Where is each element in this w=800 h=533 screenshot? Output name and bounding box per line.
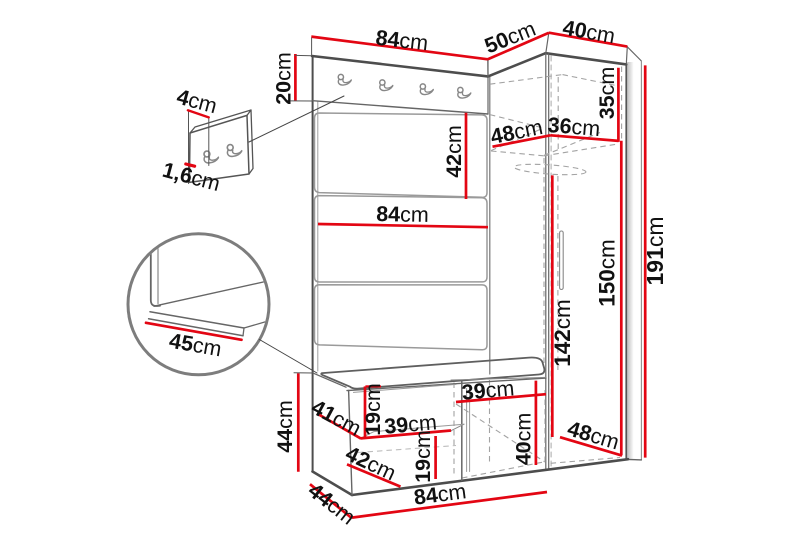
svg-text:19cm: 19cm bbox=[361, 383, 385, 436]
svg-text:39cm: 39cm bbox=[461, 376, 515, 404]
svg-text:20cm: 20cm bbox=[272, 52, 296, 105]
svg-text:191cm: 191cm bbox=[642, 216, 668, 285]
svg-text:42cm: 42cm bbox=[442, 125, 466, 178]
svg-text:44cm: 44cm bbox=[273, 400, 297, 453]
svg-text:19cm: 19cm bbox=[411, 430, 435, 483]
svg-text:40cm: 40cm bbox=[512, 413, 536, 466]
svg-text:36cm: 36cm bbox=[547, 113, 601, 141]
svg-text:142cm: 142cm bbox=[550, 299, 575, 367]
svg-text:35cm: 35cm bbox=[595, 67, 619, 120]
svg-text:150cm: 150cm bbox=[595, 239, 620, 307]
svg-text:84cm: 84cm bbox=[376, 202, 429, 227]
